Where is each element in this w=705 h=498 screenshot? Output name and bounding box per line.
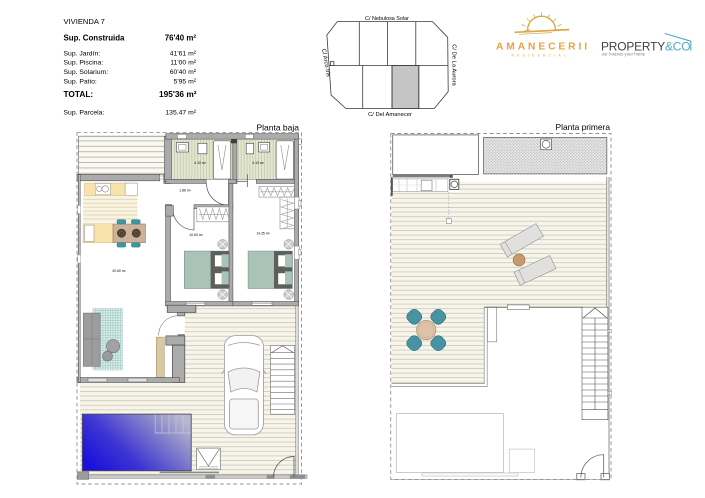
svg-text:Planta primera: Planta primera	[556, 122, 611, 132]
svg-text:60'40 m²: 60'40 m²	[170, 69, 197, 76]
svg-text:C/ Nebulosa Solar: C/ Nebulosa Solar	[365, 16, 409, 22]
svg-text:20.60 m²: 20.60 m²	[112, 269, 126, 273]
svg-text:41'61 m²: 41'61 m²	[170, 51, 197, 58]
svg-text:C/ Del Amanecer: C/ Del Amanecer	[368, 112, 412, 118]
svg-text:Sup. Construida: Sup. Construida	[64, 33, 126, 42]
svg-text:TOTAL:: TOTAL:	[64, 89, 94, 99]
svg-text:Sup. Solarium:: Sup. Solarium:	[64, 69, 109, 76]
svg-text:VIVIENDA 7: VIVIENDA 7	[64, 17, 105, 26]
svg-text:AMANECERII: AMANECERII	[496, 41, 590, 52]
svg-text:5'95 m²: 5'95 m²	[174, 79, 197, 86]
svg-text:Planta baja: Planta baja	[256, 123, 299, 133]
svg-text:Sup. Patio:: Sup. Patio:	[64, 79, 97, 86]
svg-text:195'36 m²: 195'36 m²	[159, 89, 197, 99]
svg-text:Sup. Piscina:: Sup. Piscina:	[64, 59, 104, 66]
svg-text:10.63 m²: 10.63 m²	[189, 233, 203, 237]
svg-text:4.10 m²: 4.10 m²	[194, 161, 206, 165]
svg-text:11'00 m²: 11'00 m²	[170, 59, 196, 66]
svg-text:135.47 m²: 135.47 m²	[165, 110, 196, 117]
svg-text:Sup. Parcela:: Sup. Parcela:	[64, 110, 105, 117]
svg-text:1.86 m²: 1.86 m²	[179, 189, 191, 193]
svg-text:Sup. Jardín:: Sup. Jardín:	[64, 51, 101, 58]
svg-text:14.35 m²: 14.35 m²	[256, 232, 270, 236]
svg-text:our houses your home: our houses your home	[602, 52, 646, 57]
svg-text:4.10 m²: 4.10 m²	[252, 161, 264, 165]
svg-text:C/ De La Aurora: C/ De La Aurora	[451, 44, 457, 86]
svg-text:RESIDENCIAL: RESIDENCIAL	[512, 54, 569, 58]
svg-text:76'40 m²: 76'40 m²	[165, 33, 197, 42]
